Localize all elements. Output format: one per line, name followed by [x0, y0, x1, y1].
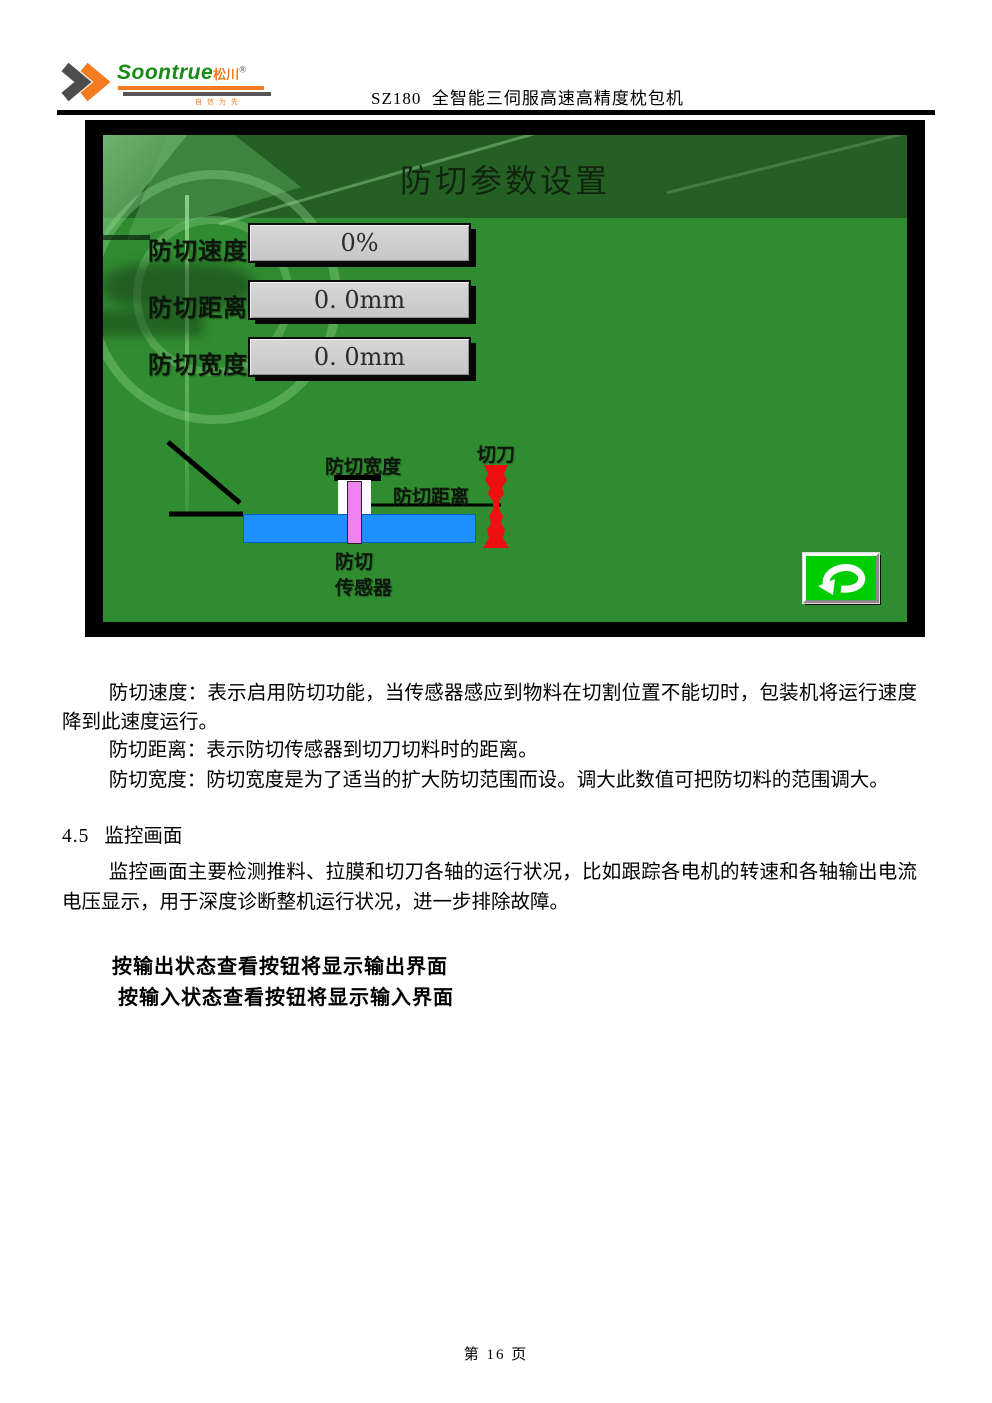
chevrons-icon	[60, 63, 110, 103]
anti-cut-sensor-bar	[347, 481, 362, 544]
document-title: SZ180 全智能三伺服高速高精度枕包机	[371, 84, 684, 109]
return-button[interactable]	[803, 553, 879, 603]
logo-underline-orange	[118, 86, 264, 90]
header-rule	[57, 110, 935, 115]
diagram-distance-label: 防切距离	[393, 482, 469, 509]
hmi-screenshot-frame: 防切参数设置 防切速度 0% 防切距离 0. 0mm 防切宽度 0. 0mm 防…	[85, 120, 925, 637]
diagram-cutter-label: 切刀	[477, 440, 515, 467]
anti-cut-distance-label: 防切距离	[148, 288, 248, 323]
anti-cut-speed-label: 防切速度	[148, 231, 248, 266]
section-heading: 4.5监控画面	[62, 819, 182, 848]
brand-name-cn: 松川	[213, 67, 239, 82]
note-input-status: 按输入状态查看按钮将显示输入界面	[118, 981, 454, 1010]
cutter-icon	[481, 465, 511, 549]
registered-mark: ®	[239, 65, 246, 75]
note-output-status: 按输出状态查看按钮将显示输出界面	[112, 950, 448, 979]
anti-cut-speed-input[interactable]: 0%	[248, 223, 471, 263]
hmi-page-title: 防切参数设置	[103, 156, 907, 202]
anti-cut-width-input[interactable]: 0. 0mm	[248, 337, 471, 377]
logo-underline-gray	[123, 92, 271, 96]
paragraph-anti-cut-width: 防切宽度：防切宽度是为了适当的扩大防切范围而设。调大此数值可把防切料的范围调大。	[62, 766, 917, 795]
background-shadow	[103, 235, 150, 240]
section-number: 4.5	[62, 826, 89, 847]
brand-slogan: 自信为先	[195, 97, 243, 107]
page-number: 第 16 页	[0, 1343, 992, 1364]
anti-cut-distance-input[interactable]: 0. 0mm	[248, 280, 471, 320]
section-title: 监控画面	[104, 826, 182, 847]
anti-cut-width-label: 防切宽度	[148, 345, 248, 380]
diagram-width-label: 防切宽度	[325, 452, 401, 479]
paragraph-anti-cut-distance: 防切距离：表示防切传感器到切刀切料时的距离。	[62, 736, 917, 765]
return-arrow-icon	[813, 559, 869, 597]
paragraph-monitor-screen: 监控画面主要检测推料、拉膜和切刀各轴的运行状况，比如跟踪各电机的转速和各轴输出电…	[62, 858, 917, 918]
hmi-screen: 防切参数设置 防切速度 0% 防切距离 0. 0mm 防切宽度 0. 0mm 防…	[103, 135, 907, 622]
soontrue-logo: Soontrue松川® 自信为先	[60, 55, 280, 110]
brand-name: Soontrue	[117, 61, 213, 84]
paragraph-anti-cut-speed: 防切速度：表示启用防切功能，当传感器感应到物料在切割位置不能切时，包装机将运行速…	[62, 679, 917, 737]
diagram-sensor-label: 防切 传感器	[335, 550, 392, 602]
